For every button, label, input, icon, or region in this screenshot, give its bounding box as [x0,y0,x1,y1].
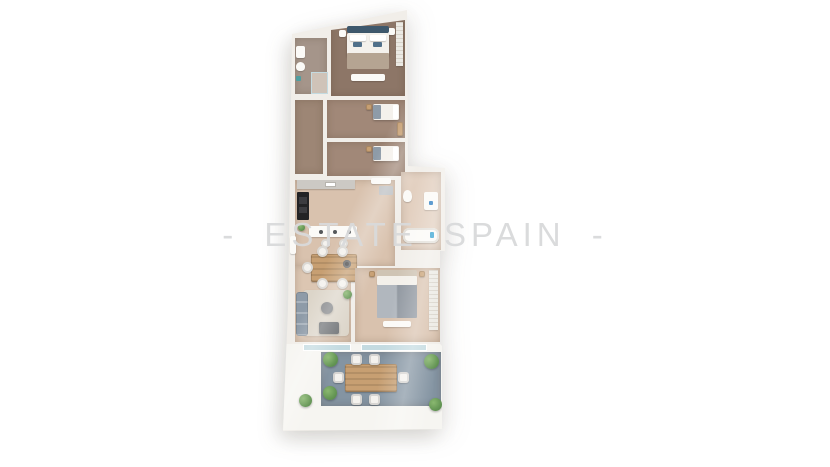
kitchen-sink [325,182,336,187]
bedroom3-wardrobe [429,270,438,330]
bedroom-a-throw [373,105,381,119]
terrace-chair-top-2 [369,354,380,365]
hall-doormat [379,186,393,195]
dining-chair-bottom-2 [337,278,348,289]
bedroom-a-desk [397,122,403,136]
bedroom-b-pillow [393,147,398,160]
bathroom-sink [296,46,305,58]
island-dot-1 [319,230,323,234]
dining-chair-top-1 [317,246,328,257]
master-bed-headboard [347,26,389,33]
bedroom3-duvet [377,285,417,318]
tv-cabinet [319,322,339,334]
master-bed-cushion-right [373,42,382,47]
apartment-shadow-wrapper [283,8,445,432]
bathtub-label [430,232,434,238]
shower [311,72,328,94]
living-plant [343,290,352,299]
bedroom-b-nightstand [366,146,372,152]
island-dot-2 [333,230,337,234]
terrace-chair-left [333,372,344,383]
dining-chair-left [302,262,313,273]
master-bed-pillow-left [350,35,366,41]
dining-chair-top-2 [337,246,348,257]
oven-door [299,197,307,204]
floor-plan-canvas: - ESTATE SPAIN - [0,0,830,467]
master-bed-bench [351,74,385,81]
terrace-plant-mid-left [323,386,337,400]
island-dot-3 [347,230,351,234]
pouf [321,302,333,314]
terrace-glass-door-right [361,344,427,351]
bedroom3-nightstand-left [369,271,375,277]
master-bed-cushion-left [353,42,362,47]
microwave-door [299,207,307,213]
entry-plant [298,224,305,231]
dining-table [311,254,357,282]
washer-label [429,201,433,205]
teal-towel [296,76,301,81]
bedroom-a-pillow [393,105,398,119]
bedroom-a-nightstand [366,104,372,110]
dining-tray [343,260,351,268]
terrace-plant-top-left [323,352,338,367]
terrace-glass-door-left [303,344,351,351]
terrace-plant-bottom-right [429,398,442,411]
terrace-plant-top-right [424,354,439,369]
terrace-table [345,364,397,392]
dining-chair-bottom-1 [317,278,328,289]
terrace-chair-bottom-2 [369,394,380,405]
entry-door [290,236,296,254]
toilet-main [403,190,412,202]
bedroom-b-throw [373,147,381,160]
terrace-plant-bottom-left [299,394,312,407]
master-nightstand-right [388,28,395,35]
bedroom3-pillows [377,276,417,285]
sofa [296,292,308,336]
terrace-chair-right [398,372,409,383]
hall-console [371,178,391,184]
master-bed-pillow-right [370,35,386,41]
master-wardrobe [396,22,403,66]
bedroom3-bench [383,321,411,327]
terrace-chair-bottom-1 [351,394,362,405]
toilet-top [296,62,305,71]
bedroom3-nightstand-right [419,271,425,277]
master-nightstand-left [339,30,346,37]
corridor-floor [295,100,323,174]
terrace-chair-top-1 [351,354,362,365]
apartment-3d-floorplan [283,8,445,432]
master-bed-blanket [347,53,389,69]
